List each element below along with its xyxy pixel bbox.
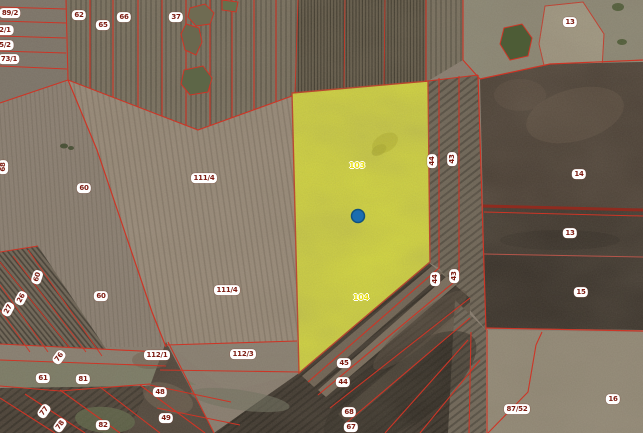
parcel-label-81[interactable]: 81 [76, 374, 90, 384]
parcel-label-89-2[interactable]: 89/2 [0, 8, 21, 18]
parcel-label-82[interactable]: 82 [96, 420, 110, 430]
parcel-label-48[interactable]: 48 [153, 387, 167, 397]
parcel-label-68[interactable]: 68 [0, 160, 8, 174]
parcel-label-73-1[interactable]: 73/1 [0, 54, 20, 64]
parcel-label-111-4[interactable]: 111/4 [214, 285, 240, 295]
parcel-label-43[interactable]: 43 [447, 152, 457, 166]
parcel-label-44[interactable]: 44 [430, 272, 440, 286]
map-canvas[interactable] [0, 0, 643, 433]
parcel-label-104[interactable]: 104 [353, 294, 369, 302]
parcel-label-16[interactable]: 16 [606, 394, 620, 404]
parcel-label-66[interactable]: 66 [117, 12, 131, 22]
parcel-label-112-1[interactable]: 112/1 [144, 350, 170, 360]
selected-point-marker[interactable] [352, 210, 365, 223]
parcel-label-44[interactable]: 44 [336, 377, 350, 387]
parcel-label-65[interactable]: 65 [96, 20, 110, 30]
parcel-label-45[interactable]: 45 [337, 358, 351, 368]
parcel-label-15[interactable]: 15 [574, 287, 588, 297]
tree-patch [222, 0, 238, 12]
parcel-label-43[interactable]: 43 [449, 269, 459, 283]
parcel-label-103[interactable]: 103 [349, 162, 365, 170]
parcel-label-61[interactable]: 61 [36, 373, 50, 383]
parcel-label-111-4[interactable]: 111/4 [191, 173, 217, 183]
parcel-label-13[interactable]: 13 [563, 17, 577, 27]
parcel-label-60[interactable]: 60 [94, 291, 108, 301]
parcel-label-49[interactable]: 49 [159, 413, 173, 423]
marker-layer [352, 210, 365, 223]
parcel-label-13[interactable]: 13 [563, 228, 577, 238]
parcel-label-2-1[interactable]: 2/1 [0, 25, 13, 35]
parcel-label-68[interactable]: 68 [342, 407, 356, 417]
parcel-label-14[interactable]: 14 [572, 169, 586, 179]
parcel-label-5-2[interactable]: 5/2 [0, 40, 13, 50]
parcel-label-67[interactable]: 67 [344, 422, 358, 432]
map-viewport[interactable]: 89/22/15/273/162656637136860111/41034443… [0, 0, 643, 433]
parcel-label-60[interactable]: 60 [77, 183, 91, 193]
parcel-label-87-52[interactable]: 87/52 [504, 404, 530, 414]
parcel-label-112-3[interactable]: 112/3 [230, 349, 256, 359]
parcel-label-44[interactable]: 44 [427, 154, 437, 168]
parcel-label-62[interactable]: 62 [72, 10, 86, 20]
parcel-label-37[interactable]: 37 [169, 12, 183, 22]
